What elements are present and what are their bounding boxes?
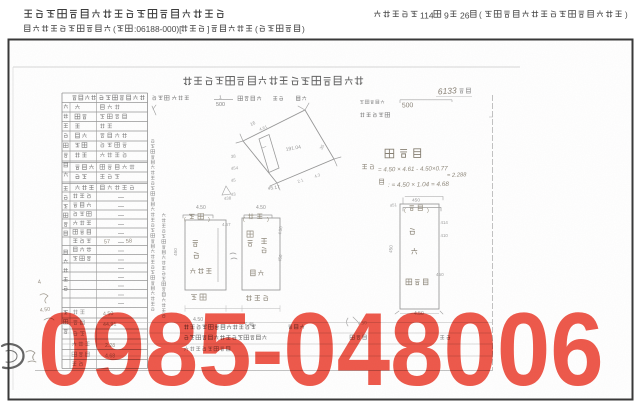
- svg-text:(: (: [255, 24, 258, 34]
- svg-text:]: ]: [207, 24, 209, 34]
- svg-text:4.67: 4.67: [222, 222, 231, 227]
- svg-text:): ): [267, 217, 269, 223]
- svg-text:: = 4.50 × 1.04 = 4.68: : = 4.50 × 1.04 = 4.68: [388, 181, 449, 189]
- svg-text:500: 500: [216, 102, 225, 108]
- svg-text:(: (: [404, 208, 406, 214]
- svg-text:414: 414: [441, 220, 449, 225]
- svg-text:): ): [625, 11, 628, 20]
- svg-text:454: 454: [231, 165, 239, 171]
- svg-text:(: (: [184, 217, 186, 223]
- svg-text:438: 438: [224, 195, 232, 201]
- svg-text:(: (: [479, 11, 482, 20]
- svg-text:450: 450: [436, 272, 444, 277]
- svg-text:450: 450: [173, 248, 178, 256]
- svg-text:(: (: [113, 24, 116, 34]
- svg-text:): ): [208, 217, 210, 223]
- svg-text:500: 500: [402, 102, 414, 109]
- svg-text:57: 57: [104, 239, 111, 245]
- svg-text::06188-000)[: :06188-000)[: [134, 24, 182, 34]
- svg-text:4.50: 4.50: [256, 205, 266, 211]
- svg-text:450: 450: [412, 198, 420, 204]
- svg-text:4.50: 4.50: [196, 205, 206, 211]
- svg-text:(: (: [243, 217, 245, 223]
- svg-text:58: 58: [126, 238, 133, 245]
- svg-text:= 4.50 × 4.61 - 4.50×0.77: = 4.50 × 4.61 - 4.50×0.77: [378, 165, 448, 173]
- svg-text:6133: 6133: [437, 85, 457, 96]
- svg-text:410: 410: [441, 233, 449, 238]
- svg-text:): ): [427, 208, 429, 214]
- svg-text:9: 9: [444, 10, 449, 20]
- svg-text:= 2.288: = 2.288: [447, 172, 467, 179]
- svg-text:114: 114: [420, 10, 434, 20]
- svg-text:26: 26: [460, 10, 470, 20]
- svg-text:450: 450: [388, 245, 394, 254]
- svg-text:451: 451: [389, 202, 397, 208]
- svg-text:): ): [302, 24, 305, 34]
